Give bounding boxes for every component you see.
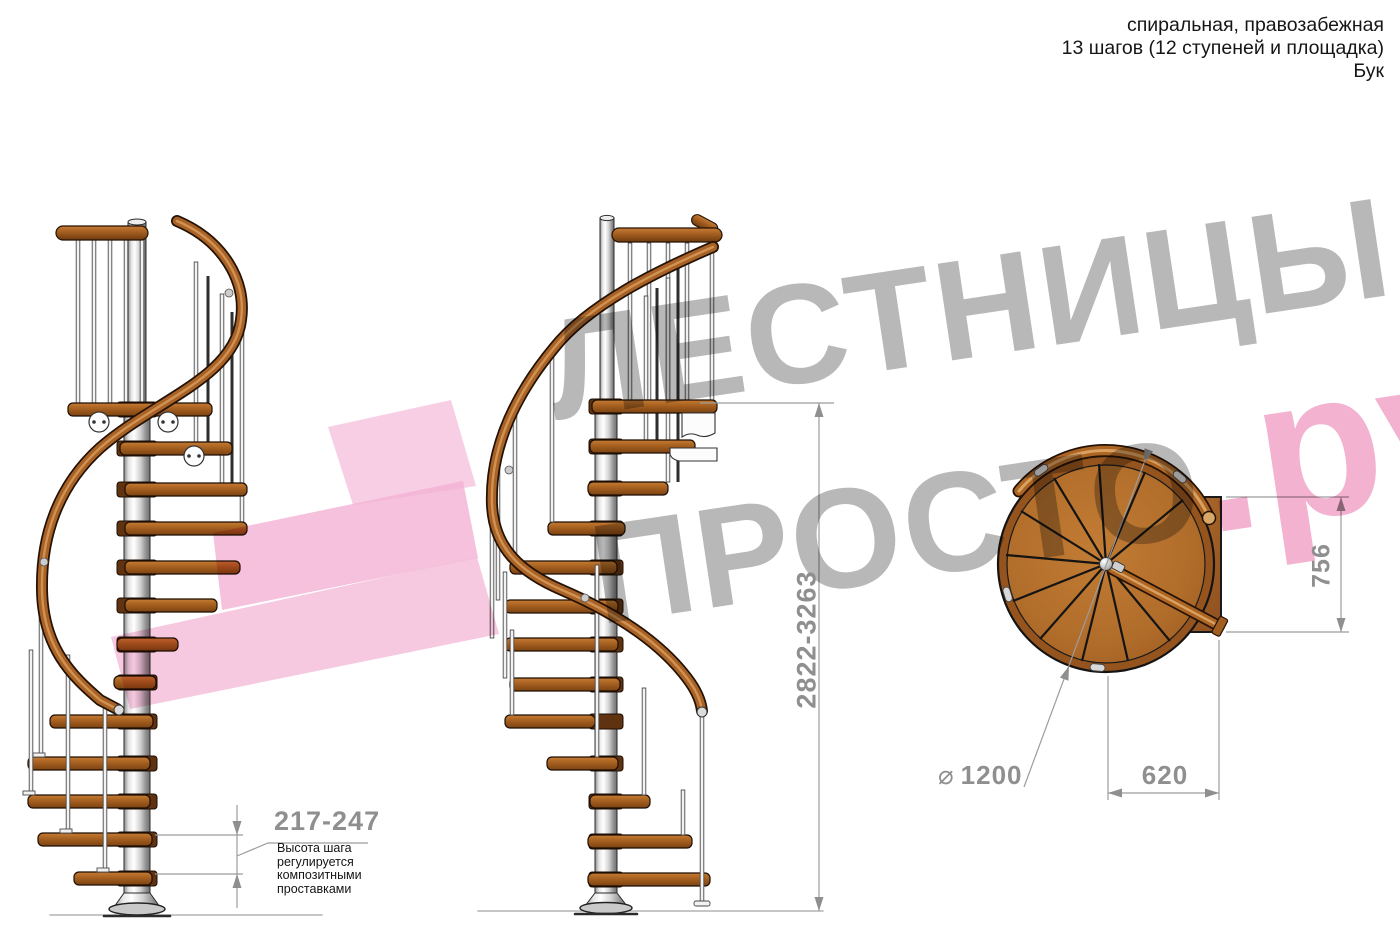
spec-steps: 13 шагов (12 ступеней и площадка)	[1062, 37, 1384, 60]
top-view	[998, 451, 1228, 672]
dimension-landing-depth: 756	[1308, 521, 1337, 611]
handrail-ferrule-a	[114, 705, 124, 715]
drawing-canvas: спиральная, правозабежная 13 шагов (12 с…	[0, 0, 1400, 950]
handrail-top-bar-b	[612, 228, 722, 242]
handrail-top-bar-a	[56, 226, 148, 240]
staircase-technical-drawing	[0, 0, 1400, 950]
handrail-ferrule-b	[697, 707, 707, 717]
step-height-note: Высота шага регулируется композитными пр…	[277, 842, 417, 896]
side-view-b	[478, 213, 823, 914]
pole-base-a	[104, 893, 170, 916]
dimension-diameter: ⌀1200	[938, 760, 1023, 791]
dimension-landing-width: 620	[1114, 760, 1216, 791]
dimension-step-height: 217-247	[274, 806, 380, 837]
dimension-total-height: 2822-3263	[792, 555, 823, 725]
spec-type: спиральная, правозабежная	[1062, 14, 1384, 37]
diameter-symbol: ⌀	[938, 760, 955, 790]
spec-text-block: спиральная, правозабежная 13 шагов (12 с…	[1062, 14, 1384, 83]
balusters-lower-a	[23, 598, 109, 872]
landing-platform-b	[592, 400, 717, 413]
spec-material: Бук	[1062, 60, 1384, 83]
pole-base-b	[575, 893, 637, 914]
